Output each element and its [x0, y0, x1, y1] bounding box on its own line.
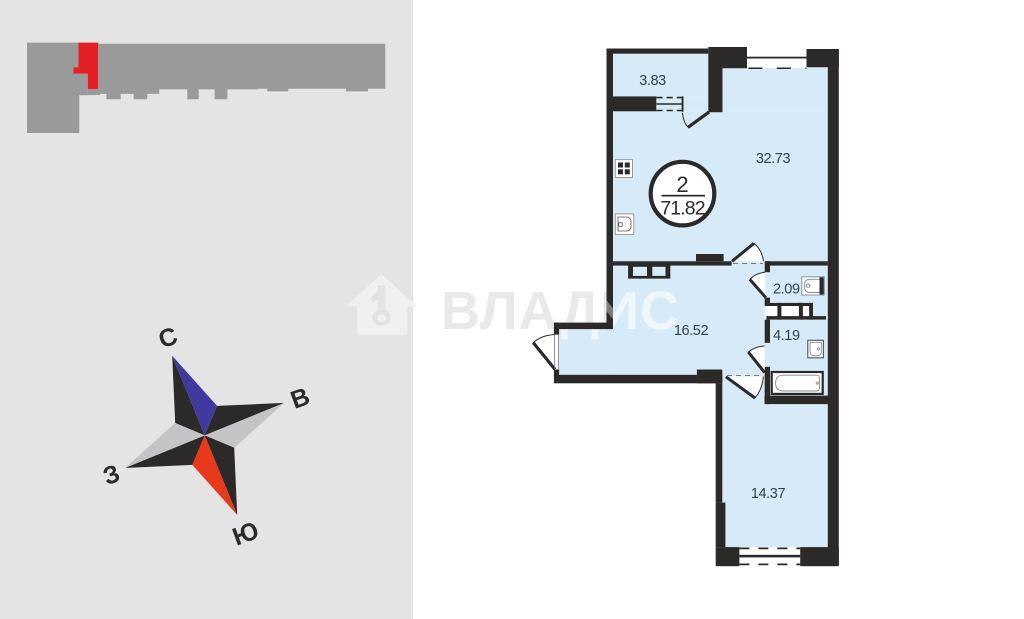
svg-text:32.73: 32.73 [756, 151, 791, 167]
svg-text:14.37: 14.37 [751, 486, 786, 502]
svg-text:3.83: 3.83 [639, 73, 666, 89]
svg-text:71.82: 71.82 [660, 197, 704, 219]
svg-text:16.52: 16.52 [674, 323, 709, 339]
svg-text:2: 2 [676, 172, 688, 197]
svg-text:2.09: 2.09 [773, 282, 800, 298]
svg-text:4.19: 4.19 [773, 328, 800, 344]
